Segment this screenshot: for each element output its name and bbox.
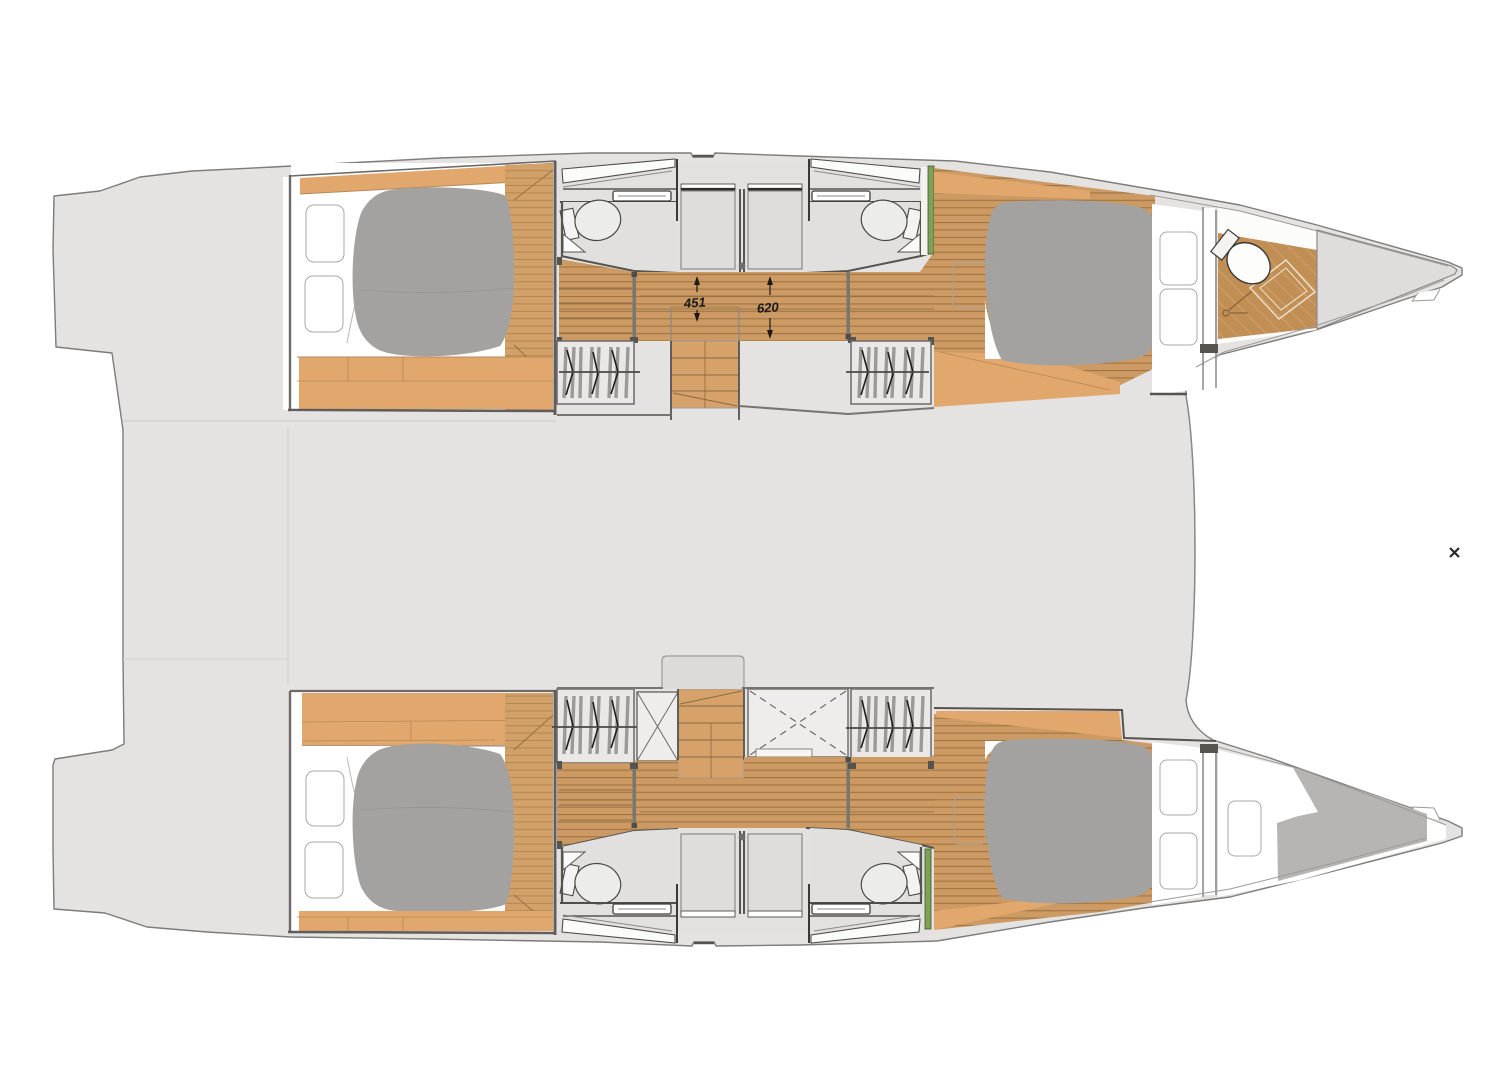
svg-text:620: 620	[756, 299, 779, 316]
svg-text:451: 451	[682, 294, 706, 311]
